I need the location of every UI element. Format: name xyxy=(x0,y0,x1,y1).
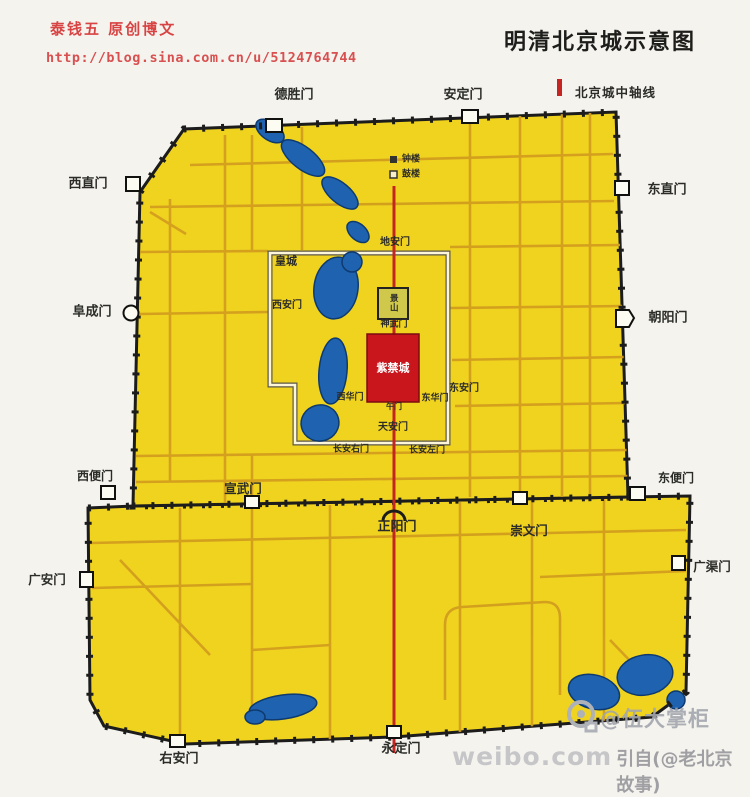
forbidden-city-rect xyxy=(367,334,419,402)
legend-axis-swatch xyxy=(557,79,562,96)
weibo-camera-icon xyxy=(564,699,600,733)
watermark-credit-line: weibo.com 引自(@老北京故事) xyxy=(452,742,750,797)
watermark-source: 引自(@老北京故事) xyxy=(616,745,750,797)
map-title: 明清北京城示意图 xyxy=(504,24,696,56)
watermark-site: weibo.com xyxy=(452,742,612,771)
jingshan-box xyxy=(378,288,408,319)
watermark-username: @伍大掌柜 xyxy=(600,703,710,733)
zhonglou-symbol xyxy=(390,156,397,163)
gulou-symbol xyxy=(390,171,397,178)
blog-author-line: 泰钱五 原创博文 xyxy=(50,18,176,39)
page: { "header": { "author_line": "泰钱五 原创博文",… xyxy=(0,0,750,784)
legend-axis-label: 北京城中轴线 xyxy=(575,82,656,101)
blog-url-link[interactable]: http://blog.sina.com.cn/u/5124764744 xyxy=(46,50,357,66)
beijing-city-map xyxy=(0,0,750,784)
